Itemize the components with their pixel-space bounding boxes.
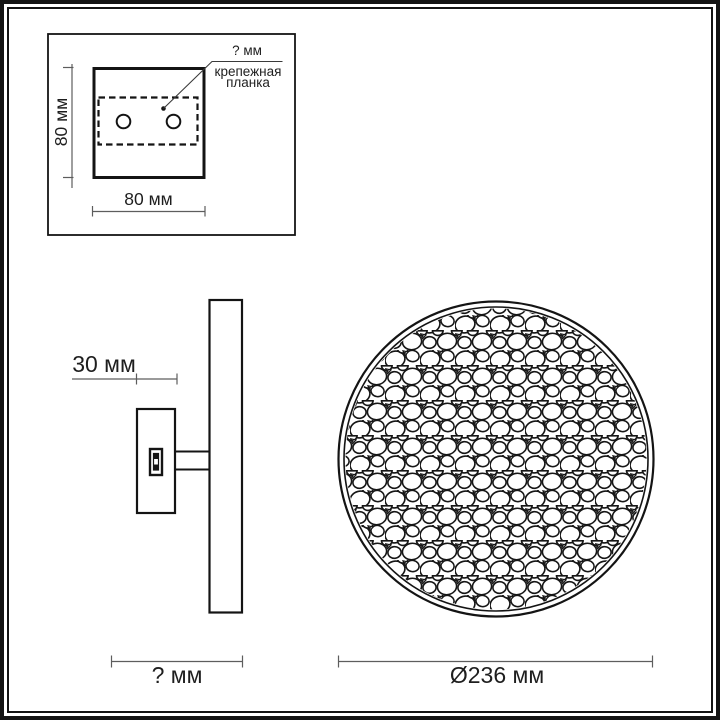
plate-height-label: 80 мм bbox=[51, 98, 71, 146]
plate-width-label: 80 мм bbox=[124, 189, 172, 209]
bracket-width-label: ? мм bbox=[232, 43, 262, 58]
overall-depth-label: ? мм bbox=[152, 662, 203, 688]
dimension-drawing-page: ? мм крепежная планка 80 мм 80 мм bbox=[0, 0, 720, 720]
mount-depth-label: 30 мм bbox=[72, 351, 136, 377]
bracket-caption-line2: планка bbox=[226, 75, 270, 90]
lamp-dimension-diagram: ? мм крепежная планка 80 мм 80 мм bbox=[0, 0, 720, 720]
diameter-label: Ø236 мм bbox=[450, 662, 544, 688]
switch-knob-top bbox=[154, 454, 159, 460]
switch-knob-bottom bbox=[154, 465, 159, 471]
lamp-texture bbox=[346, 309, 647, 610]
